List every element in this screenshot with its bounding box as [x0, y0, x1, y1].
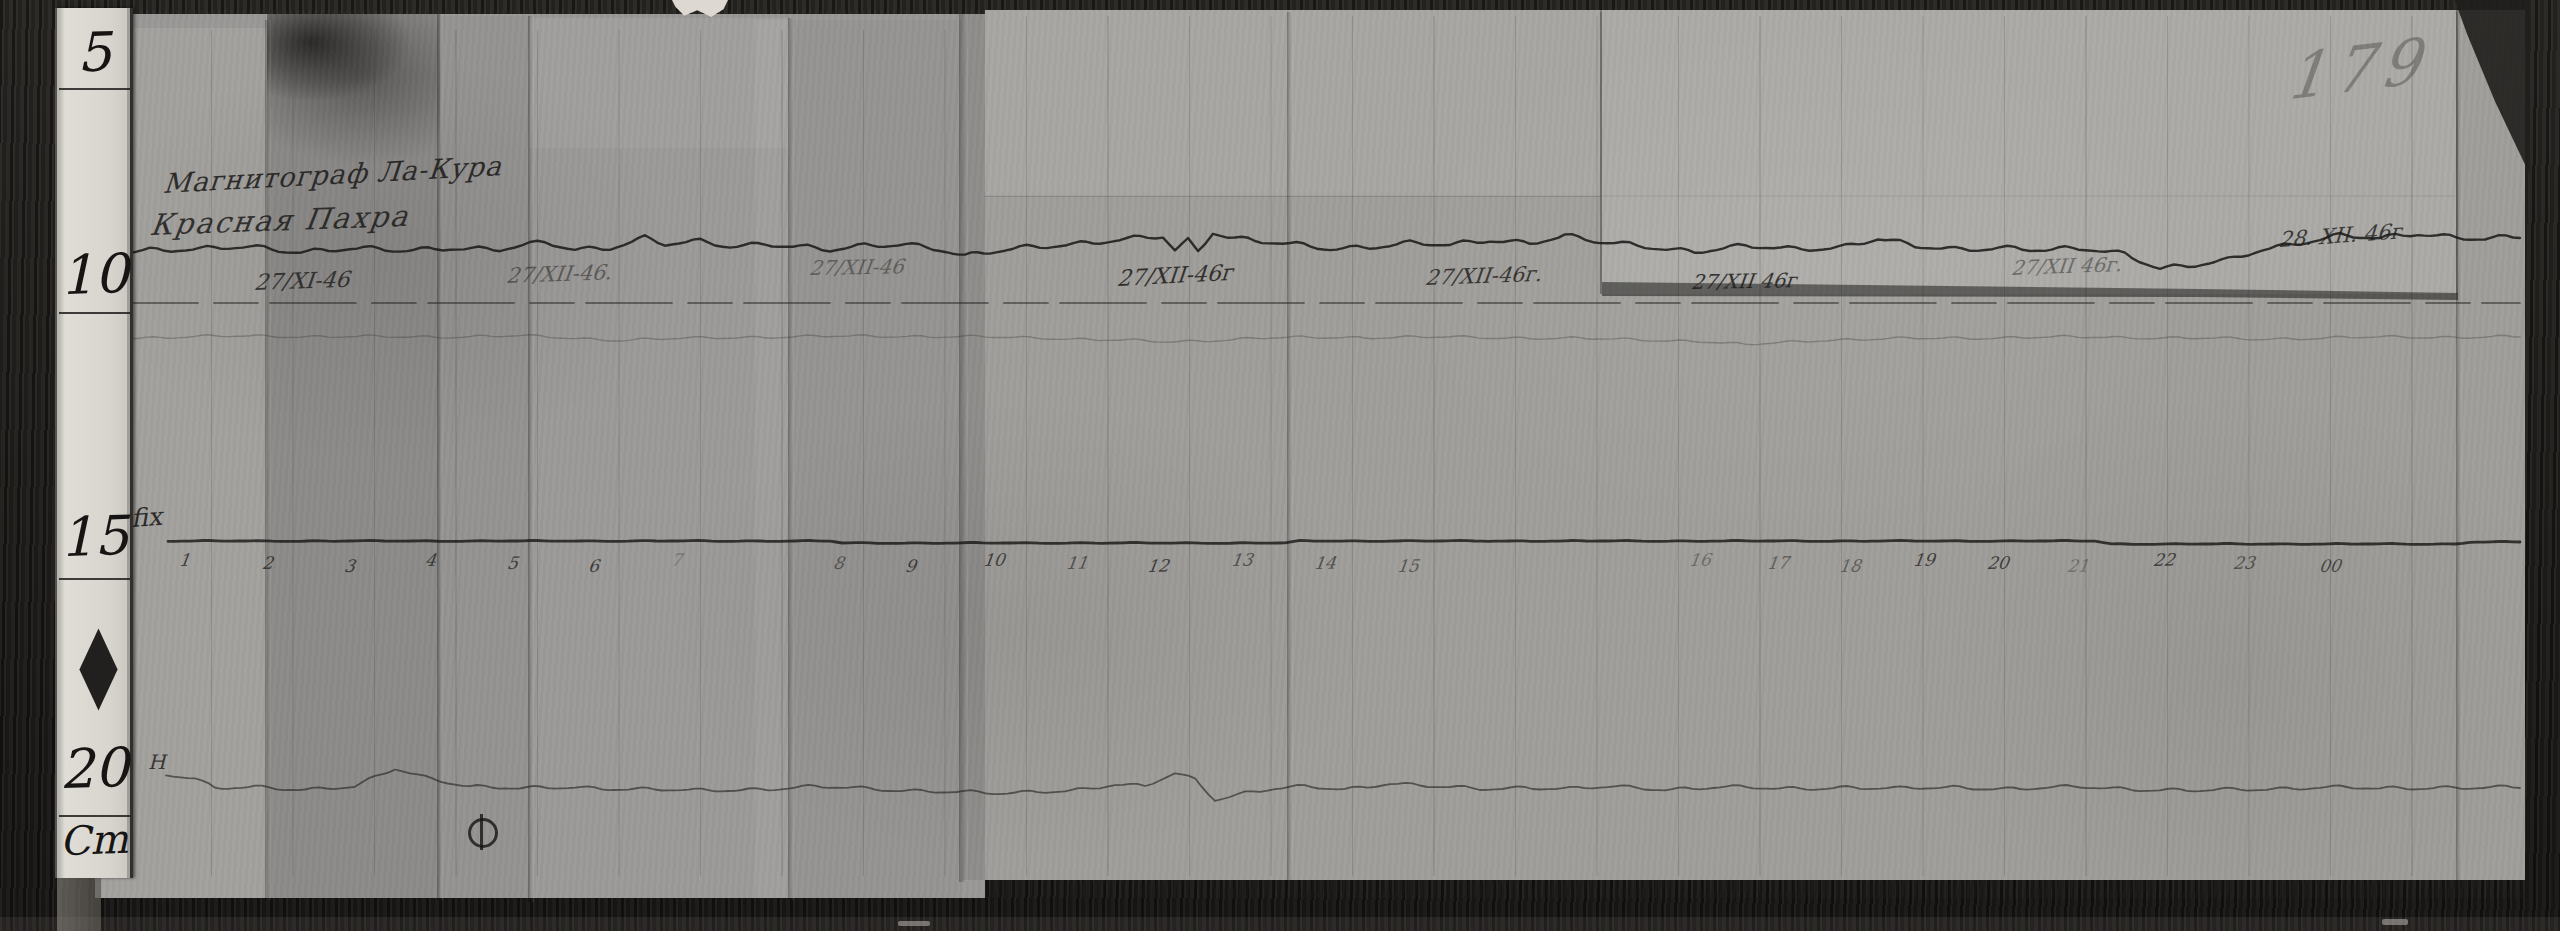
hour-label: 3 [343, 556, 356, 576]
hour-label: 17 [1766, 553, 1790, 573]
annotations-layer: 27/XI-4627/XII-46.27/XII-4627/XII-46г27/… [0, 0, 2560, 931]
ruler-line [59, 88, 130, 90]
date-label: 27/XI-46 [253, 267, 351, 295]
dust-speck [2382, 919, 2408, 925]
photographed-magnetogram: Магнитограф Ла-Кура Красная Пахра D fix … [0, 0, 2560, 931]
date-label: 27/XII-46. [505, 260, 613, 288]
date-label: 27/XII-46г. [1424, 262, 1543, 290]
ruler-mark-5: 5 [54, 25, 134, 82]
hour-label: 18 [1838, 556, 1862, 576]
hour-label: 13 [1230, 550, 1254, 570]
diamond-marker-icon [79, 628, 117, 710]
hour-label: 21 [2066, 556, 2090, 576]
ruler-unit-label: Cm [54, 819, 133, 862]
table-edge-highlight [0, 917, 2560, 931]
hour-label: 1 [178, 550, 191, 570]
hour-label: 22 [2152, 550, 2176, 570]
hour-label: 12 [1146, 556, 1170, 576]
date-label: 28. XII. 46г [2278, 219, 2402, 252]
date-label: 27/XII-46г [1116, 260, 1233, 291]
ruler-mark-10: 10 [54, 247, 134, 304]
hour-label: 4 [424, 550, 437, 570]
dust-speck [898, 921, 930, 926]
hour-label: 5 [506, 553, 519, 573]
ruler-mark-20: 20 [54, 741, 134, 798]
hour-label: 19 [1912, 550, 1936, 570]
hour-label: 8 [832, 553, 845, 573]
hour-label: 23 [2232, 553, 2256, 573]
hour-label: 00 [2318, 556, 2342, 576]
ruler-line [59, 578, 130, 580]
date-label: 27/XII 46г [1690, 268, 1797, 294]
ruler-line [59, 312, 130, 314]
hour-label: 2 [261, 553, 274, 573]
date-label: 27/XII-46 [808, 254, 905, 280]
hour-label: 16 [1688, 550, 1712, 570]
ruler-mark-15: 15 [54, 509, 134, 566]
hour-label: 7 [670, 550, 683, 570]
hour-label: 14 [1313, 553, 1337, 573]
hour-label: 10 [982, 550, 1006, 570]
hour-label: 9 [904, 556, 917, 576]
centimeter-ruler: 5 10 15 20 Cm [55, 8, 133, 878]
hour-label: 15 [1396, 556, 1420, 576]
date-label: 27/XII 46г. [2010, 252, 2123, 280]
hour-label: 6 [587, 556, 600, 576]
hour-label: 11 [1065, 553, 1089, 573]
hour-label: 20 [1986, 553, 2010, 573]
